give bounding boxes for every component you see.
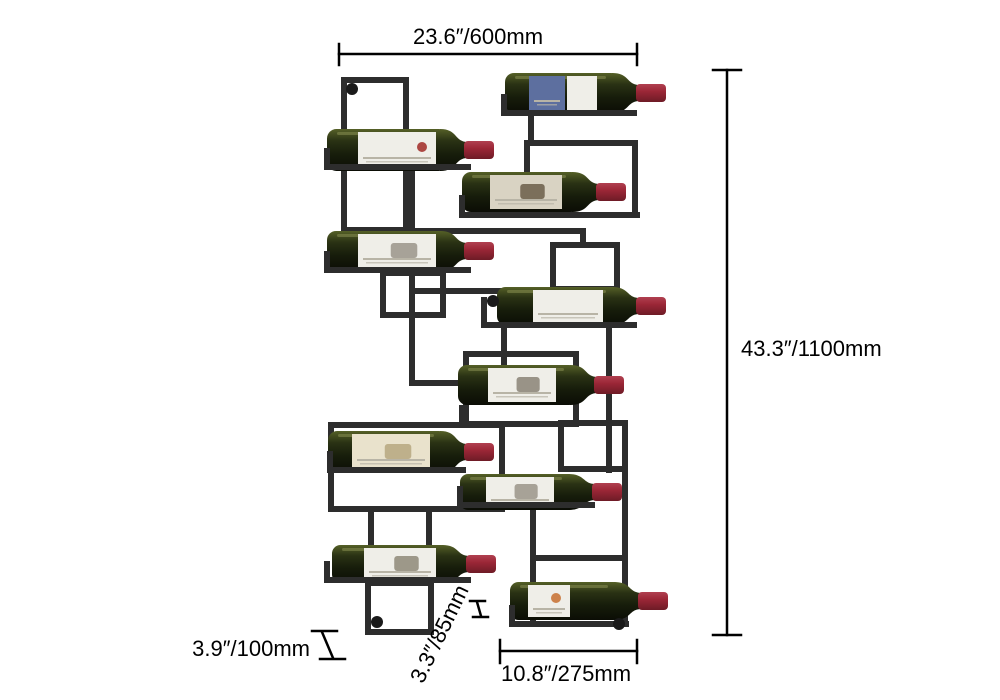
bottle-shoulder	[440, 231, 468, 271]
dimension-line	[477, 602, 481, 616]
bottle-shoulder	[612, 73, 640, 113]
rack-frame	[553, 245, 617, 289]
label-print-line	[537, 104, 557, 106]
label-print-line	[372, 575, 428, 577]
label-graphic	[391, 243, 418, 258]
bottle-cork	[596, 183, 626, 201]
label-print-line	[491, 499, 549, 501]
dimension-depth: 3.9″/100mm	[192, 631, 345, 661]
label-graphic	[517, 377, 540, 392]
bottle-shoulder	[614, 582, 642, 620]
height-label: 43.3″/1100mm	[741, 336, 882, 361]
label-graphic	[417, 142, 427, 152]
bottle-cork	[638, 592, 668, 610]
wine-bottle	[505, 73, 666, 113]
depth-label: 3.9″/100mm	[192, 636, 310, 661]
dimension-height: 43.3″/1100mm	[713, 70, 882, 635]
rack-frame	[561, 423, 625, 469]
label-print-line	[366, 161, 428, 163]
label-print-line	[495, 199, 557, 201]
wine-rack-dimension-illustration: 23.6″/600mm 43.3″/1100mm 10.8″/275mm 3.9…	[0, 0, 1000, 700]
bottle-cork	[636, 297, 666, 315]
label-print-line	[366, 262, 428, 264]
dimension-bottom-width: 10.8″/275mm	[500, 640, 637, 686]
label-print-line	[498, 203, 554, 205]
bottom-width-label: 10.8″/275mm	[501, 661, 631, 686]
bottle-shoulder	[572, 172, 600, 212]
wine-bottle	[327, 231, 494, 271]
label-print-line	[369, 571, 431, 573]
label-print-line	[496, 396, 548, 398]
label-print-line	[541, 317, 595, 319]
bottle-cork	[464, 242, 494, 260]
label-graphic	[385, 444, 412, 459]
label-print-line	[538, 313, 598, 315]
label-graphic	[515, 484, 538, 499]
bottle-cork	[636, 84, 666, 102]
label-print-line	[357, 459, 425, 461]
mount-dot	[346, 83, 358, 95]
wine-bottle	[510, 582, 668, 620]
label-graphic	[394, 556, 418, 571]
mount-dot	[613, 618, 625, 630]
mount-dot	[487, 295, 499, 307]
label-print-line	[536, 612, 562, 614]
mount-dot	[371, 616, 383, 628]
width-label: 23.6″/600mm	[413, 24, 543, 49]
bottle-cork	[464, 141, 494, 159]
bottle-shoulder	[612, 287, 640, 325]
label-graphic	[520, 184, 544, 199]
label-print-line	[363, 157, 431, 159]
bottle-cork	[592, 483, 622, 501]
dimension-width: 23.6″/600mm	[339, 24, 637, 65]
label-print-line	[363, 258, 431, 260]
dimension-line	[322, 632, 333, 658]
label-print-line	[533, 608, 565, 610]
wine-rack	[327, 73, 668, 632]
label-print-line	[360, 463, 422, 465]
wine-bottle	[462, 172, 626, 212]
label-graphic	[551, 593, 561, 603]
bottle-shoulder	[570, 365, 598, 405]
bottle-cork	[594, 376, 624, 394]
label-print-line	[534, 100, 560, 102]
wine-bottle	[328, 431, 494, 473]
bottle-label	[567, 76, 597, 110]
label-print-line	[493, 392, 551, 394]
bottle-cork	[466, 555, 496, 573]
product-dimension-diagram: 23.6″/600mm 43.3″/1100mm 10.8″/275mm 3.9…	[0, 0, 1000, 700]
bottle-shoulder	[440, 431, 468, 473]
wine-bottle	[497, 287, 666, 325]
bottle-cork	[464, 443, 494, 461]
wine-bottle	[458, 365, 624, 405]
